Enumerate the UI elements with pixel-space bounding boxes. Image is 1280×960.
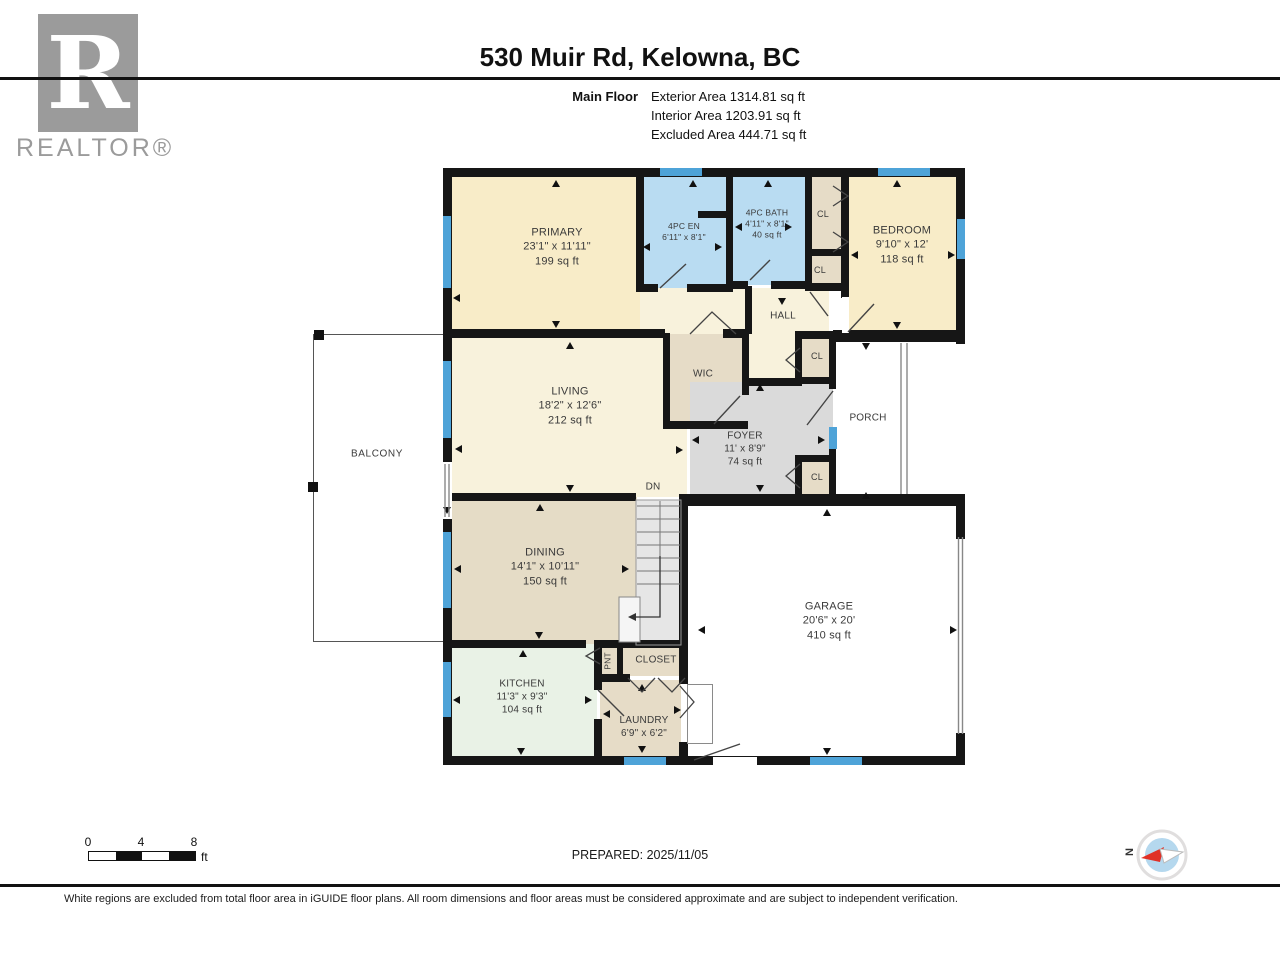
room-label-bedroom: BEDROOM9'10" x 12'118 sq ft — [873, 224, 931, 267]
dimension-arrow — [862, 343, 870, 350]
excluded-area: Excluded Area 444.71 sq ft — [651, 127, 806, 142]
window — [443, 532, 451, 608]
scale-4: 4 — [138, 835, 145, 849]
wall-segment — [594, 719, 602, 765]
wall-segment — [663, 421, 748, 429]
wall-segment — [679, 494, 688, 684]
dimension-arrow — [698, 626, 705, 634]
window — [810, 757, 862, 765]
wall-segment — [636, 284, 658, 292]
wall-segment — [594, 674, 630, 682]
wall-segment — [833, 330, 965, 342]
room-label-kitchen: KITCHEN11'3" x 9'3"104 sq ft — [497, 678, 548, 717]
room-label-garage: GARAGE20'6" x 20'410 sq ft — [803, 600, 856, 643]
realtor-logo-icon: R — [38, 14, 138, 132]
scale-8: 8 — [191, 835, 198, 849]
window — [443, 361, 451, 438]
room-label-primary: PRIMARY23'1" x 11'11"199 sq ft — [523, 226, 591, 269]
room-label-porch: PORCH — [849, 412, 886, 425]
wall-segment — [636, 168, 644, 291]
window — [443, 216, 451, 288]
wall-segment — [443, 756, 965, 765]
window — [957, 219, 965, 259]
realtor-logo-text: REALTOR® — [16, 134, 174, 163]
wall-segment — [443, 493, 636, 501]
room-label-balcony: BALCONY — [351, 448, 403, 461]
window — [624, 757, 666, 765]
closet-label-1: CL — [817, 209, 829, 221]
closet-room-label: CLOSET — [635, 654, 676, 667]
room-label-ensuite: 4PC EN6'11" x 8'1" — [662, 221, 706, 243]
window — [829, 427, 837, 449]
room-label-wic: WIC — [693, 368, 713, 381]
wall-segment — [726, 168, 733, 289]
floorplan-page: R REALTOR® 530 Muir Rd, Kelowna, BC Main… — [0, 0, 1280, 960]
window — [878, 168, 930, 176]
scale-0: 0 — [85, 835, 92, 849]
floor-name: Main Floor — [420, 89, 638, 104]
footer-divider — [0, 884, 1280, 887]
realtor-logo-letter: R — [46, 23, 129, 123]
stairs-dn-label: DN — [646, 481, 661, 494]
wall-segment — [742, 333, 749, 395]
balcony-post — [308, 482, 318, 492]
exterior-area: Exterior Area 1314.81 sq ft — [651, 89, 805, 104]
wall-segment — [795, 455, 802, 500]
wall-segment — [829, 333, 836, 389]
door-opening — [443, 462, 452, 519]
footer-disclaimer: White regions are excluded from total fl… — [64, 893, 958, 905]
wall-segment — [829, 462, 836, 500]
wall-segment — [594, 640, 688, 648]
laundry-garage-door-opening — [687, 684, 713, 744]
wall-segment — [841, 168, 849, 298]
room-label-foyer: FOYER11' x 8'9"74 sq ft — [724, 430, 765, 469]
room-label-laundry: LAUNDRY6'9" x 6'2" — [619, 714, 668, 740]
closet-label-3: CL — [811, 351, 823, 363]
compass-north-label: N — [1124, 848, 1136, 856]
wall-segment — [679, 742, 688, 765]
prepared-date: PREPARED: 2025/11/05 — [0, 848, 1280, 862]
balcony-post — [314, 330, 324, 340]
door-opening — [713, 757, 757, 766]
room-fill-stairs — [636, 500, 681, 646]
room-label-living: LIVING18'2" x 12'6"212 sq ft — [539, 385, 602, 428]
wall-segment — [956, 733, 965, 765]
window — [443, 662, 451, 717]
wall-segment — [745, 286, 752, 334]
wall-segment — [688, 494, 965, 506]
dimension-arrow — [823, 509, 831, 516]
dimension-arrow — [823, 748, 831, 755]
dimension-arrow — [950, 626, 957, 634]
closet-label-2: CL — [814, 265, 826, 277]
wall-segment — [805, 168, 812, 290]
page-title: 530 Muir Rd, Kelowna, BC — [0, 42, 1280, 73]
closet-label-4: CL — [811, 472, 823, 484]
room-label-bath: 4PC BATH4'11" x 8'1"40 sq ft — [745, 207, 789, 240]
room-label-hall: HALL — [770, 310, 796, 323]
wall-segment — [748, 378, 802, 386]
wall-segment — [805, 283, 848, 291]
wall-segment — [663, 333, 670, 429]
room-label-dining: DINING14'1" x 10'11"150 sq ft — [511, 546, 579, 589]
header-divider — [0, 77, 1280, 80]
pantry-label: PNT — [602, 652, 613, 670]
wall-segment — [698, 211, 733, 218]
room-fill-hall-strip — [640, 288, 748, 334]
wall-segment — [443, 329, 665, 338]
window — [660, 168, 702, 176]
wall-segment — [805, 249, 848, 256]
interior-area: Interior Area 1203.91 sq ft — [651, 108, 801, 123]
door-opening — [842, 297, 849, 333]
balcony-outline — [313, 334, 452, 642]
wall-segment — [443, 640, 586, 648]
